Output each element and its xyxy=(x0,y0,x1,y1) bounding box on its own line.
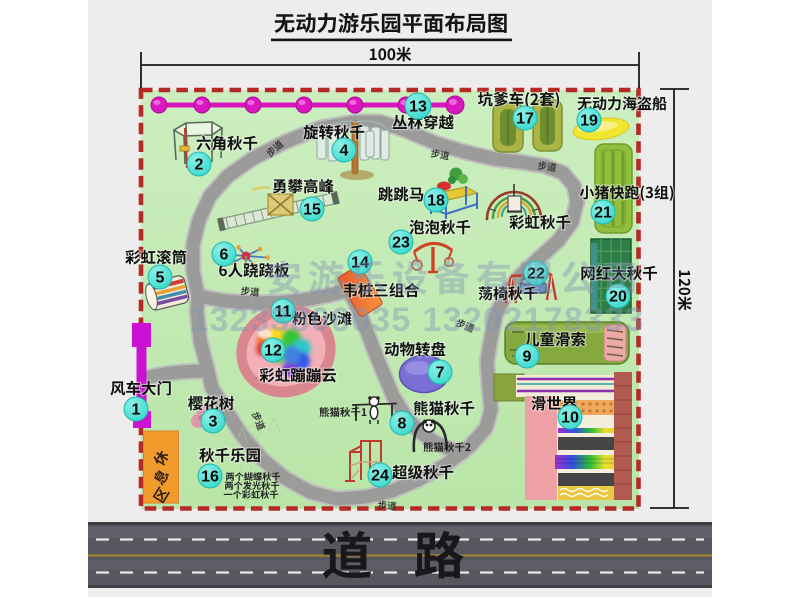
svg-text:2: 2 xyxy=(195,157,204,174)
svg-text:24: 24 xyxy=(371,468,389,485)
svg-text:7: 7 xyxy=(436,365,445,382)
svg-text:21: 21 xyxy=(594,205,612,222)
svg-text:6: 6 xyxy=(220,247,229,264)
svg-text:1: 1 xyxy=(132,402,141,419)
svg-text:16: 16 xyxy=(201,469,219,486)
svg-text:10: 10 xyxy=(561,410,579,427)
svg-text:23: 23 xyxy=(392,235,410,252)
svg-text:5: 5 xyxy=(156,270,165,287)
svg-text:17: 17 xyxy=(516,111,534,128)
svg-text:3: 3 xyxy=(209,414,218,431)
svg-text:9: 9 xyxy=(523,349,532,366)
svg-text:13233806035 13202178333: 13233806035 13202178333 xyxy=(189,301,644,339)
svg-text:13: 13 xyxy=(409,99,427,116)
svg-text:4: 4 xyxy=(340,143,349,160)
svg-text:15: 15 xyxy=(303,202,321,219)
svg-text:12: 12 xyxy=(264,343,282,360)
svg-text:8: 8 xyxy=(398,416,407,433)
svg-text:18: 18 xyxy=(427,193,445,210)
svg-text:19: 19 xyxy=(580,113,598,130)
